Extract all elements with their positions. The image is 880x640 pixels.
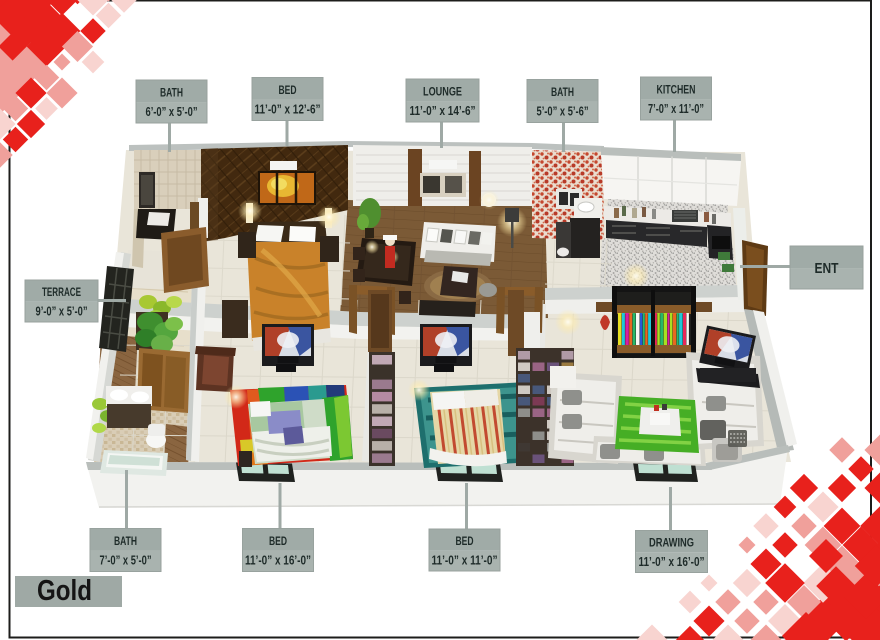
svg-text:Gold: Gold [37,575,92,607]
svg-text:11’-0” x 16’-0”: 11’-0” x 16’-0” [245,553,311,568]
svg-text:11’-0” x 11’-0”: 11’-0” x 11’-0” [432,552,498,567]
svg-text:7’-0” x 11’-0”: 7’-0” x 11’-0” [648,101,704,116]
svg-text:TERRACE: TERRACE [42,285,81,299]
svg-text:11’-0” x 12’-6”: 11’-0” x 12’-6” [255,102,321,117]
svg-text:11’-0” x 14’-6”: 11’-0” x 14’-6” [410,103,476,118]
svg-text:5’-0” x 5’-6”: 5’-0” x 5’-6” [537,104,589,119]
svg-text:6’-0” x 5’-0”: 6’-0” x 5’-0” [146,104,198,119]
svg-text:BATH: BATH [114,534,137,548]
svg-text:LOUNGE: LOUNGE [423,84,462,98]
svg-text:ENT: ENT [815,260,839,277]
svg-text:BED: BED [279,83,297,97]
svg-text:BATH: BATH [551,85,574,99]
svg-text:11’-0” x 16’-0”: 11’-0” x 16’-0” [639,554,705,569]
svg-text:7’-0” x 5’-0”: 7’-0” x 5’-0” [100,553,152,568]
svg-text:DRAWING: DRAWING [649,535,694,549]
svg-text:BED: BED [269,534,287,548]
svg-text:9’-0” x 5’-0”: 9’-0” x 5’-0” [36,303,88,318]
svg-text:BATH: BATH [160,85,183,99]
svg-text:BED: BED [456,534,474,548]
svg-text:KITCHEN: KITCHEN [657,82,696,96]
